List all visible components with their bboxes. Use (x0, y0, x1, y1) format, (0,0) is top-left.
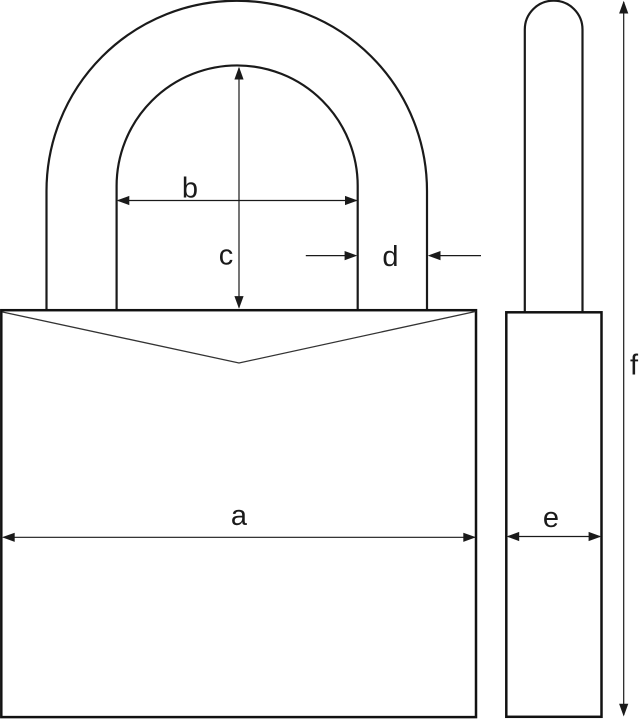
svg-text:c: c (219, 240, 234, 272)
svg-text:e: e (543, 502, 559, 534)
svg-text:d: d (382, 241, 398, 273)
svg-text:f: f (630, 350, 639, 382)
svg-text:a: a (231, 500, 248, 532)
svg-text:b: b (182, 173, 198, 205)
